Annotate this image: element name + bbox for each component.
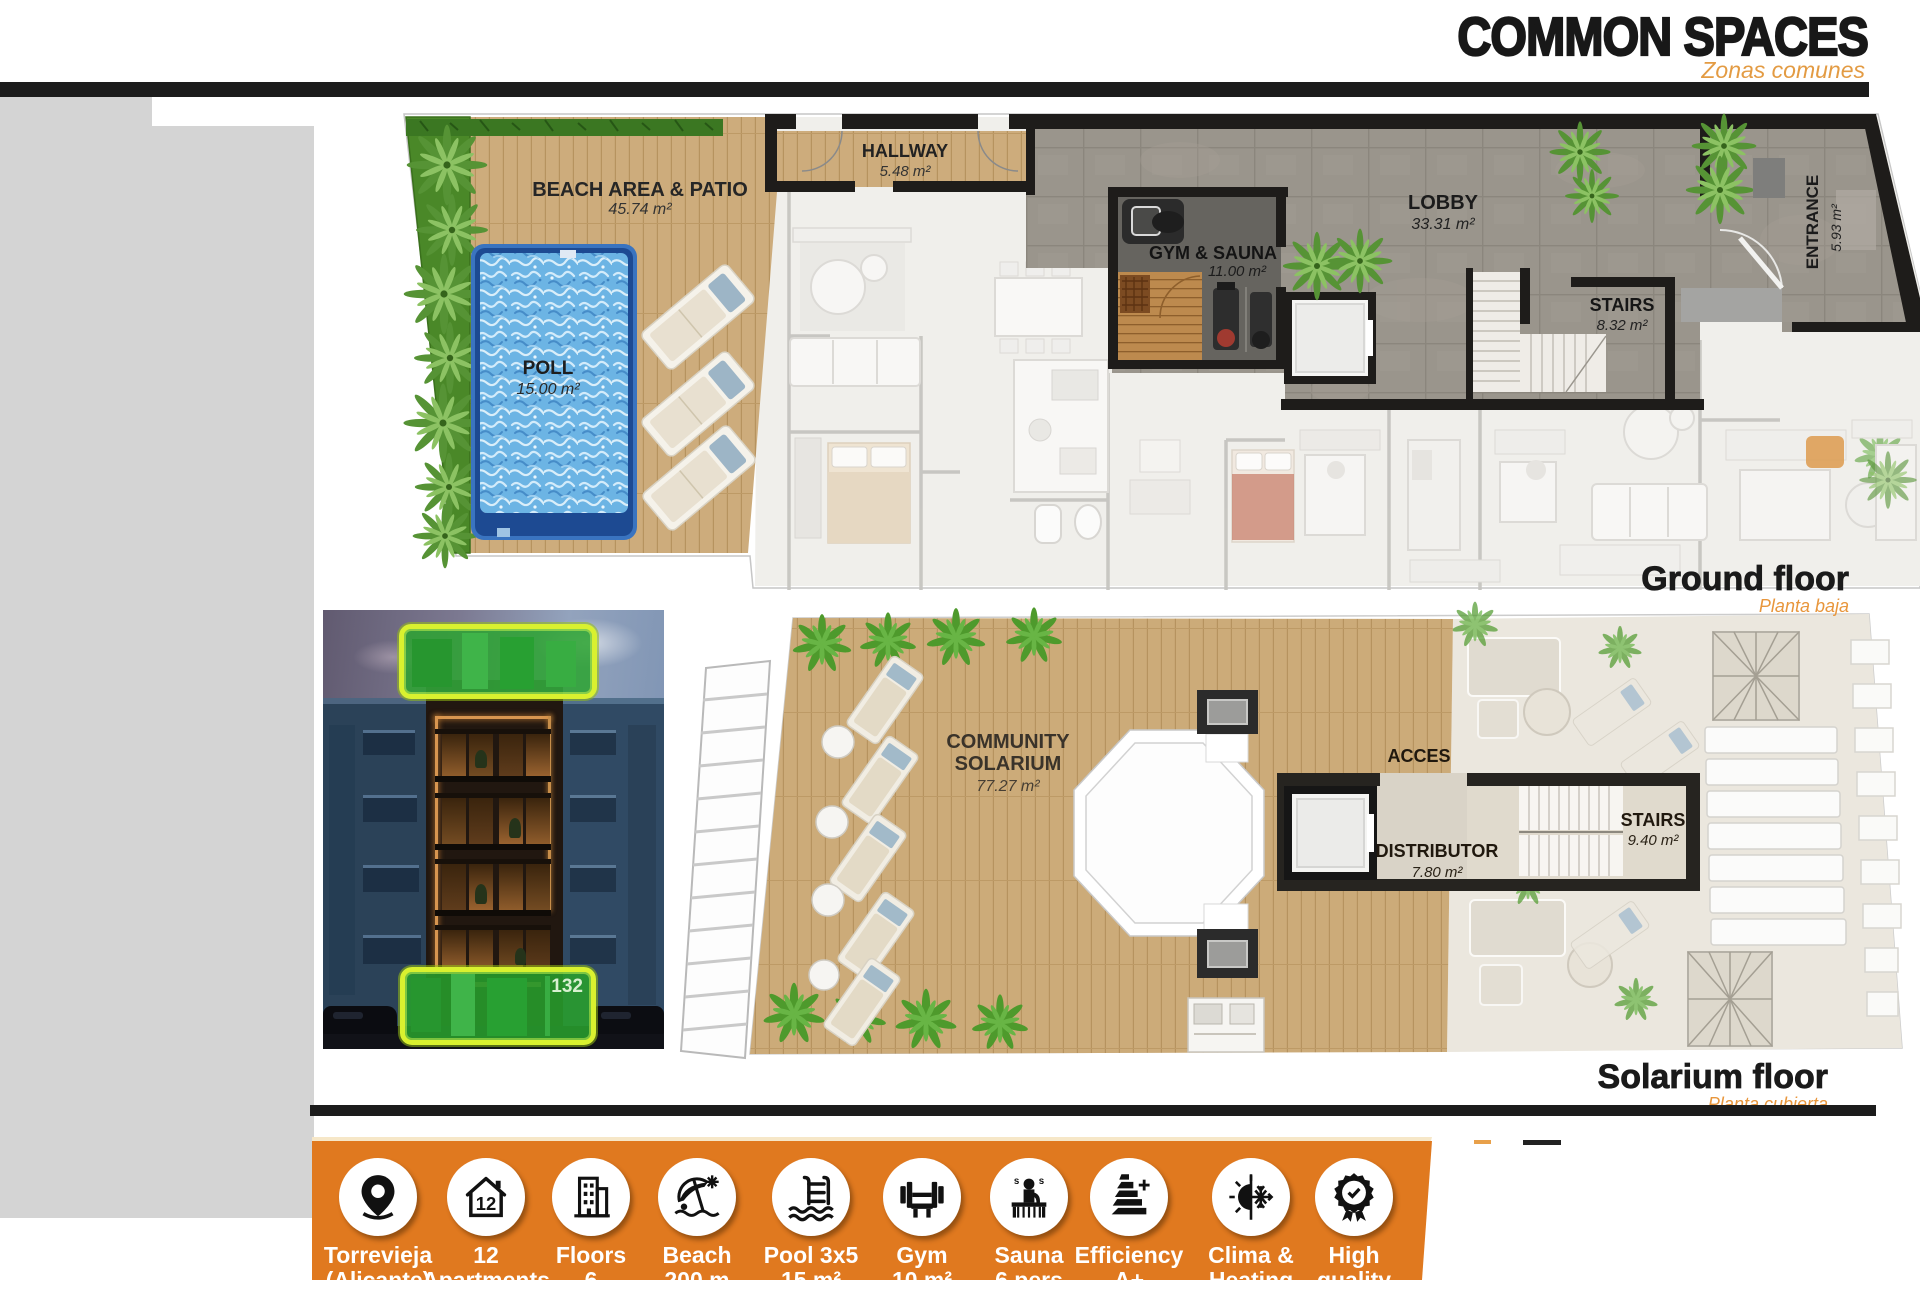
- svg-text:12: 12: [476, 1193, 496, 1214]
- svg-text:STAIRS: STAIRS: [1621, 810, 1686, 830]
- svg-text:STAIRS: STAIRS: [1590, 295, 1655, 315]
- svg-text:77.27 m²: 77.27 m²: [976, 778, 1040, 795]
- svg-text:BEACH AREA & PATIO: BEACH AREA & PATIO: [532, 179, 748, 201]
- svg-text:LOBBY: LOBBY: [1408, 192, 1479, 214]
- svg-text:POLL: POLL: [523, 358, 574, 379]
- svg-text:7.80 m²: 7.80 m²: [1412, 864, 1464, 881]
- svg-text:5.48 m²: 5.48 m²: [880, 163, 932, 180]
- svg-text:SOLARIUM: SOLARIUM: [955, 753, 1062, 775]
- svg-text:15.00 m²: 15.00 m²: [516, 381, 580, 398]
- svg-text:8.32 m²: 8.32 m²: [1597, 317, 1649, 334]
- svg-text:9.40 m²: 9.40 m²: [1628, 832, 1680, 849]
- svg-text:ACCES: ACCES: [1387, 746, 1450, 766]
- svg-text:11.00 m²: 11.00 m²: [1208, 263, 1267, 280]
- svg-text:45.74 m²: 45.74 m²: [608, 201, 672, 218]
- svg-text:ENTRANCE: ENTRANCE: [1803, 175, 1822, 269]
- svg-text:33.31 m²: 33.31 m²: [1411, 216, 1475, 233]
- svg-text:5.93 m²: 5.93 m²: [1828, 203, 1844, 252]
- svg-text:s: s: [1014, 1176, 1020, 1187]
- svg-text:GYM & SAUNA: GYM & SAUNA: [1149, 243, 1277, 263]
- svg-text:HALLWAY: HALLWAY: [862, 141, 948, 161]
- svg-text:DISTRIBUTOR: DISTRIBUTOR: [1376, 841, 1499, 861]
- svg-text:COMMUNITY: COMMUNITY: [946, 731, 1070, 753]
- svg-text:s: s: [1039, 1176, 1045, 1187]
